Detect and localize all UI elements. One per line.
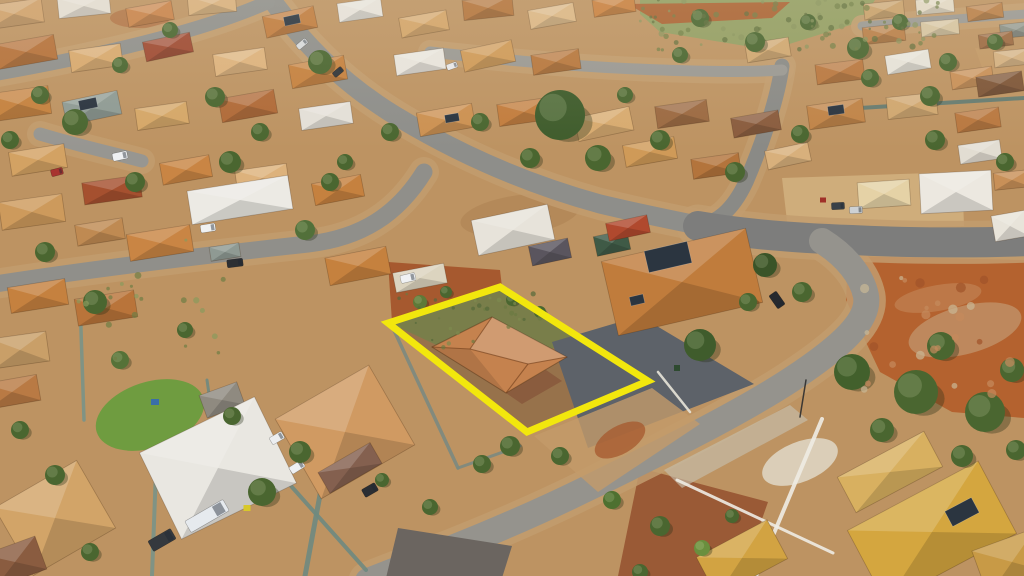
house-roof: [857, 179, 911, 209]
house-roof: [991, 210, 1024, 242]
yard-prop: [820, 198, 826, 203]
haze-overlay: [0, 0, 1024, 150]
aerial-photo: [0, 0, 1024, 576]
vehicle: [831, 202, 844, 210]
house-roof: [993, 170, 1024, 191]
yard-prop: [151, 399, 159, 405]
aerial-photo-scene: [0, 0, 1024, 576]
house-roof: [919, 170, 993, 214]
vehicle: [849, 206, 862, 214]
vehicle: [227, 258, 244, 268]
yard-prop: [674, 365, 680, 371]
yard-prop: [244, 505, 251, 511]
